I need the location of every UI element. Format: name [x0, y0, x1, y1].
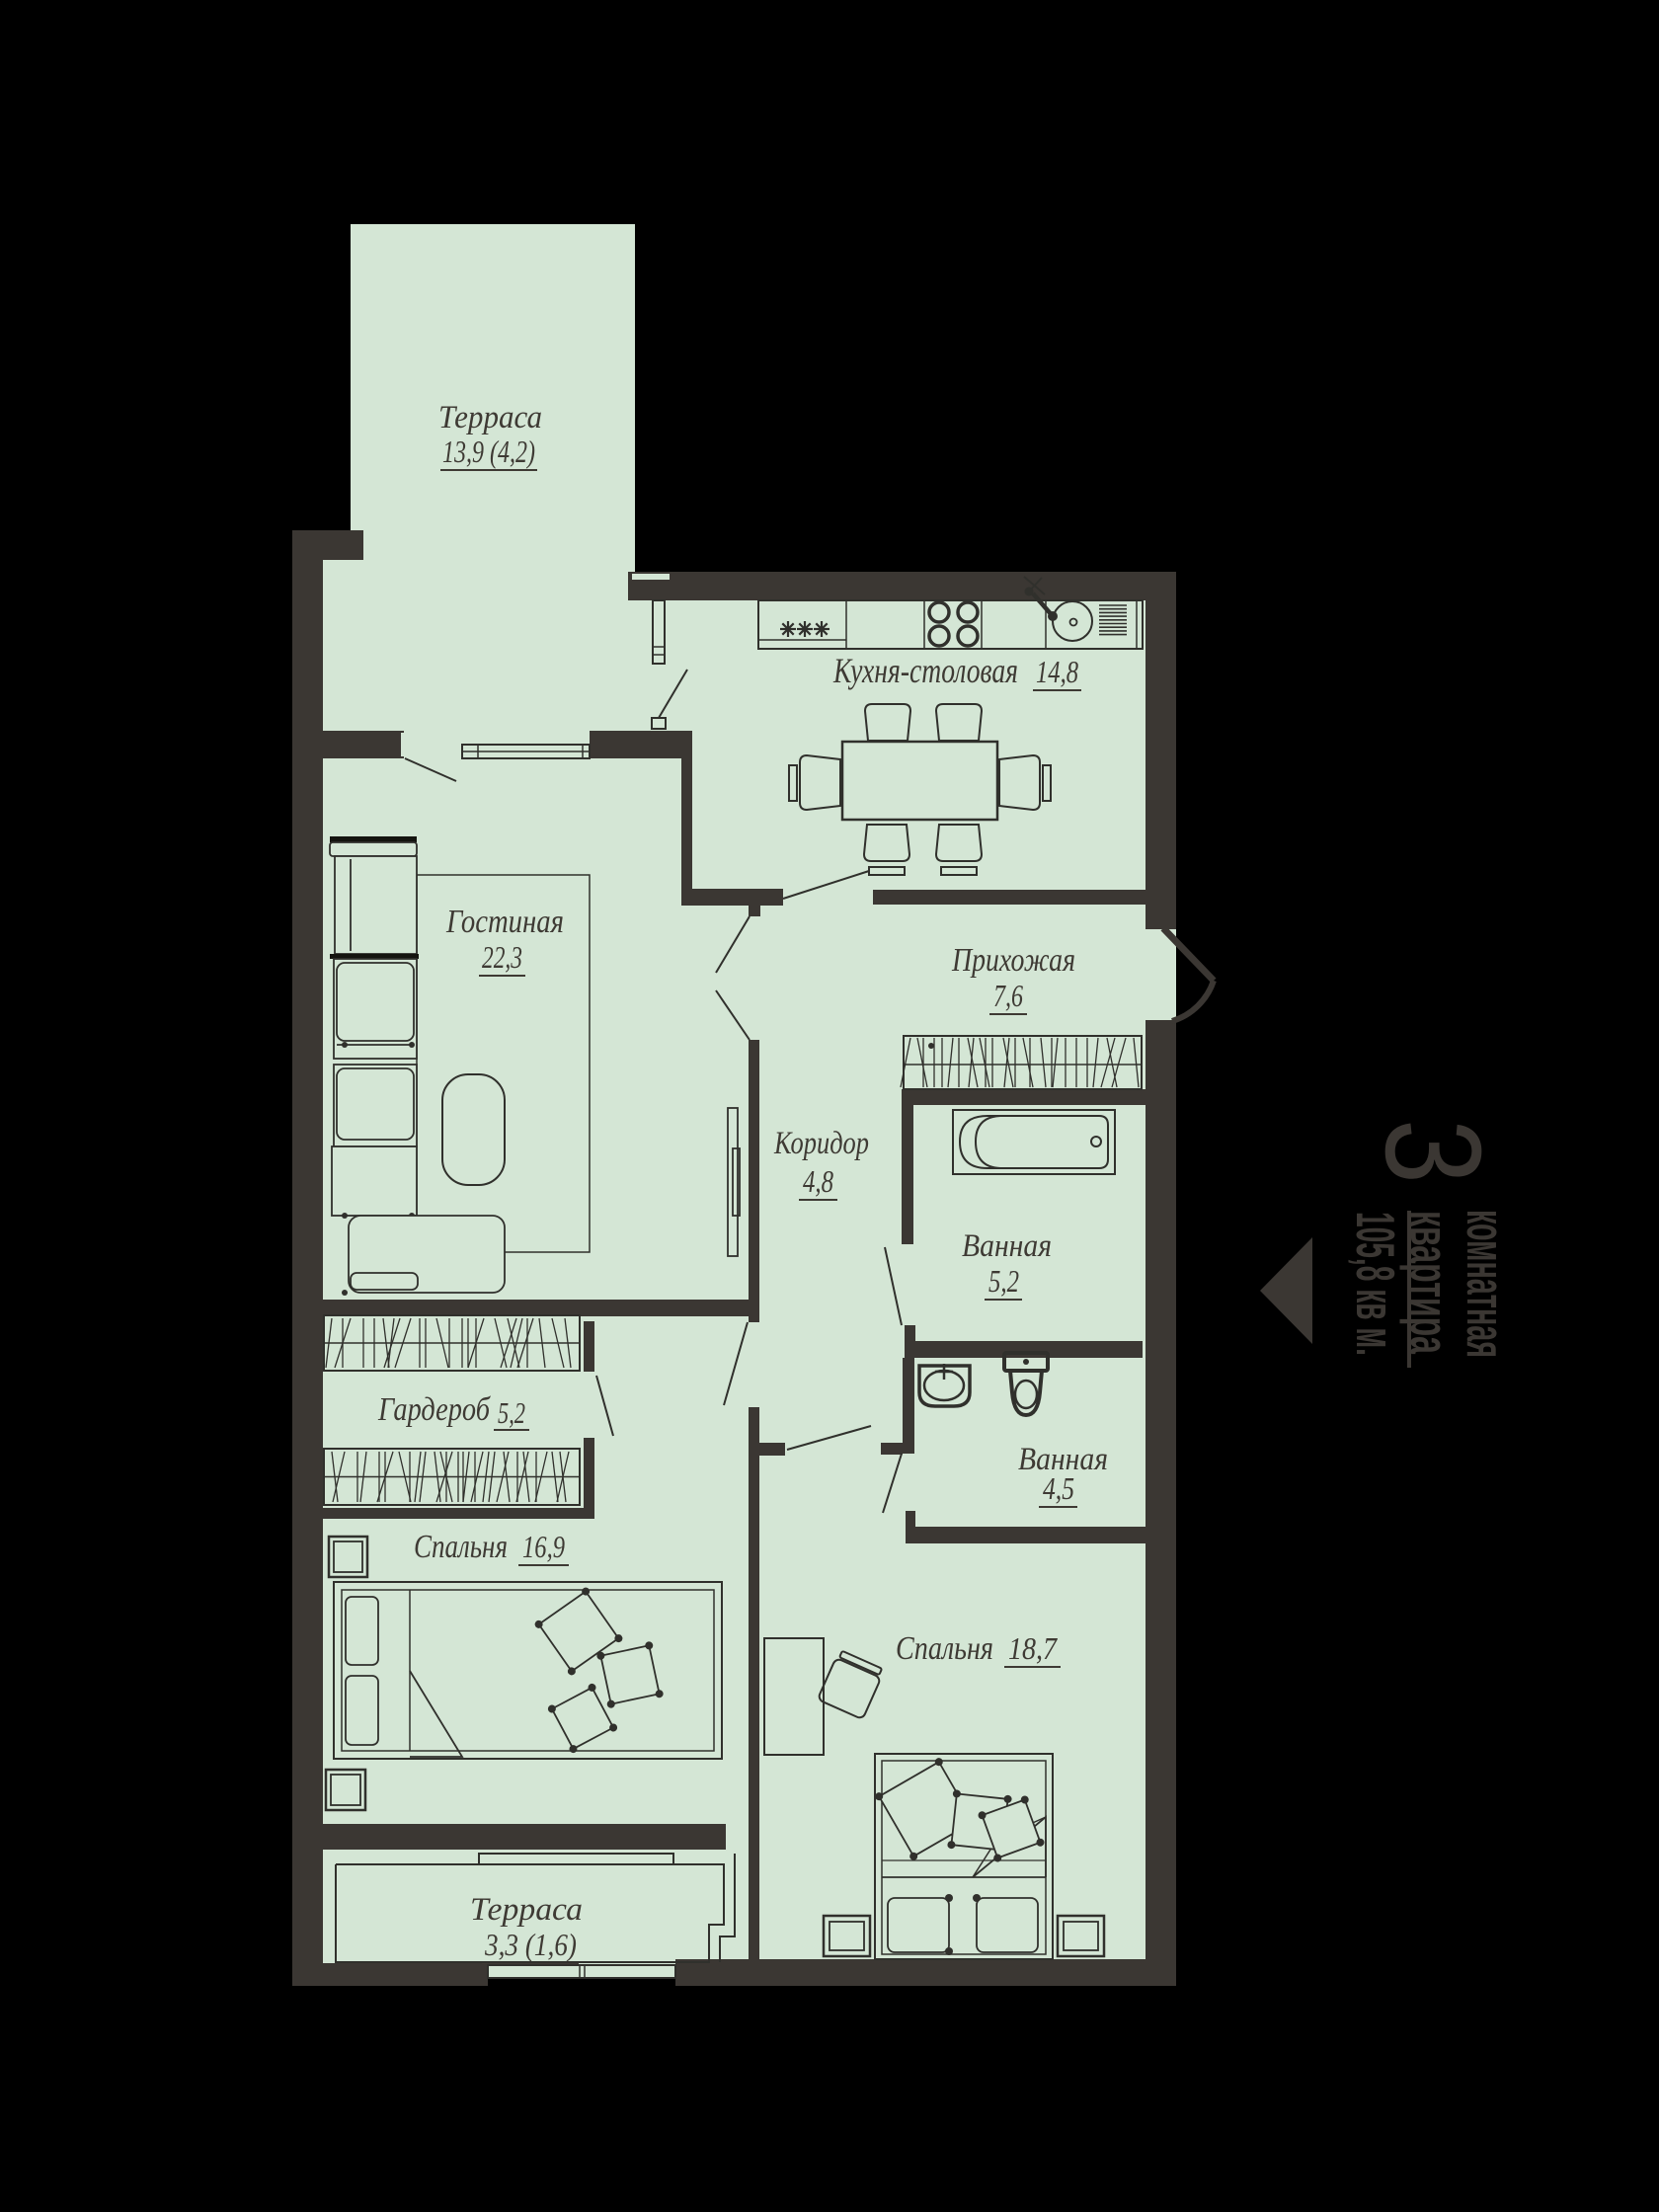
svg-text:5,2: 5,2 [988, 1263, 1019, 1299]
svg-text:18,7: 18,7 [1008, 1630, 1059, 1666]
svg-text:16,9: 16,9 [522, 1529, 565, 1564]
svg-text:Ванная: Ванная [962, 1228, 1052, 1264]
svg-text:14,8: 14,8 [1036, 654, 1078, 689]
svg-text:комнатная: комнатная [1456, 1210, 1517, 1358]
svg-text:Прихожая: Прихожая [951, 942, 1075, 979]
svg-text:Гардероб: Гардероб [377, 1391, 491, 1428]
svg-text:Терраса: Терраса [470, 1892, 583, 1928]
svg-text:Спальня: Спальня [896, 1630, 993, 1667]
svg-text:Кухня-столовая: Кухня-столовая [832, 651, 1018, 690]
svg-text:Спальня: Спальня [414, 1529, 508, 1565]
svg-text:5,2: 5,2 [498, 1395, 525, 1430]
svg-text:105,8 кв м.: 105,8 кв м. [1345, 1212, 1406, 1356]
svg-text:Терраса: Терраса [438, 400, 542, 435]
svg-text:3: 3 [1357, 1119, 1509, 1184]
svg-text:13,9 (4,2): 13,9 (4,2) [442, 434, 535, 469]
svg-text:Гостиная: Гостиная [445, 904, 564, 940]
svg-text:3,3 (1,6): 3,3 (1,6) [484, 1927, 577, 1962]
svg-text:4,8: 4,8 [803, 1163, 833, 1199]
svg-text:22,3: 22,3 [482, 939, 522, 975]
svg-text:4,5: 4,5 [1043, 1470, 1074, 1506]
svg-text:Коридор: Коридор [773, 1126, 869, 1161]
svg-text:7,6: 7,6 [993, 978, 1023, 1013]
